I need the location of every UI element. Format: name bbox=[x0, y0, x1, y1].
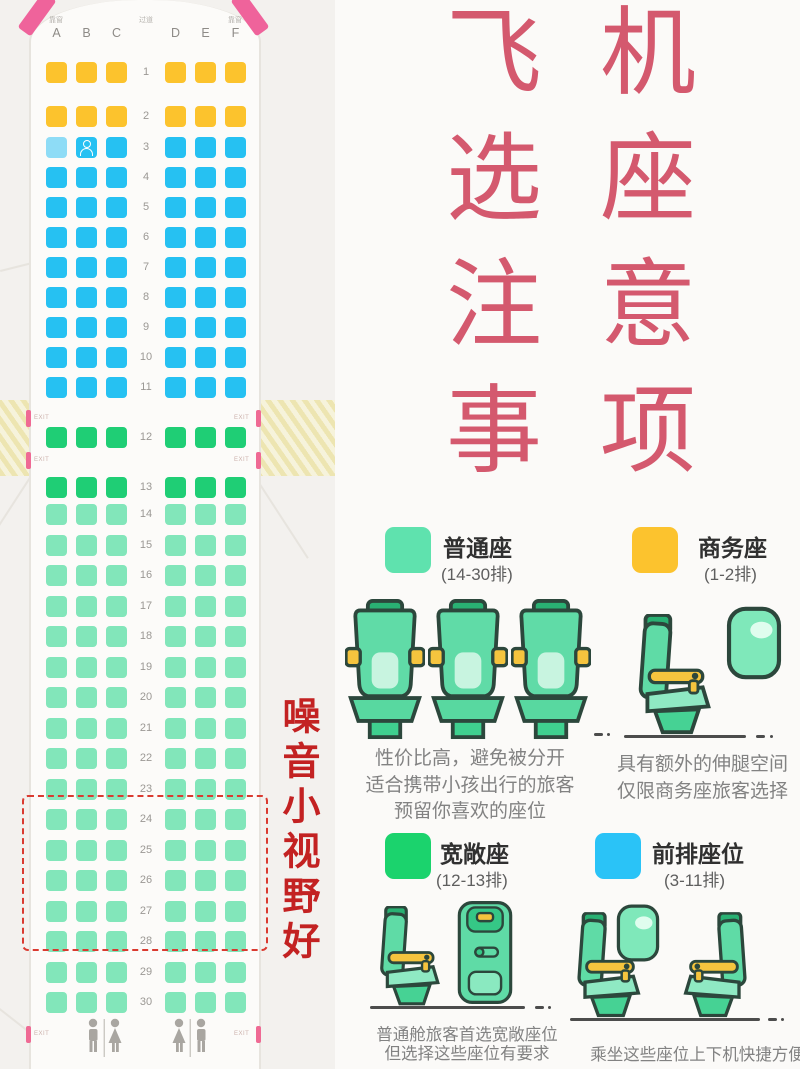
seat-5A[interactable] bbox=[46, 197, 67, 218]
exit-marker bbox=[26, 1026, 31, 1043]
row-number-14: 14 bbox=[133, 508, 159, 520]
seat-1D[interactable] bbox=[165, 62, 186, 83]
seat-15D[interactable] bbox=[165, 535, 186, 556]
ground-dot bbox=[770, 735, 773, 738]
seat-4F[interactable] bbox=[225, 167, 246, 188]
legend-swatch-business bbox=[632, 527, 678, 573]
seat-11E[interactable] bbox=[195, 377, 216, 398]
legend-desc-front: 乘坐这些座位上下机快捷方便 bbox=[590, 1046, 800, 1065]
legend-desc-normal: 性价比高，避免被分开 适合携带小孩出行的旅客 预留你喜欢的座位 bbox=[345, 746, 595, 826]
business-seat-illustration bbox=[630, 614, 722, 736]
exit-label: EXIT bbox=[234, 415, 249, 421]
front-row-seat-illustration bbox=[674, 912, 754, 1019]
ground-dot bbox=[607, 733, 610, 736]
seat-7A[interactable] bbox=[46, 257, 67, 278]
seat-2C[interactable] bbox=[106, 106, 127, 127]
seat-row-illustration bbox=[345, 599, 425, 740]
seat-7B[interactable] bbox=[76, 257, 97, 278]
row-number-21: 21 bbox=[133, 722, 159, 734]
seat-18F[interactable] bbox=[225, 626, 246, 647]
seat-1E[interactable] bbox=[195, 62, 216, 83]
row-number-4: 4 bbox=[133, 171, 159, 183]
legend-range-front: (3-11排) bbox=[664, 866, 725, 891]
row-number-23: 23 bbox=[133, 783, 159, 795]
ground-dash bbox=[768, 1018, 777, 1021]
row-number-17: 17 bbox=[133, 600, 159, 612]
ground-dash bbox=[756, 735, 765, 738]
seat-2F[interactable] bbox=[225, 106, 246, 127]
exit-marker bbox=[26, 410, 31, 427]
seat-12E[interactable] bbox=[195, 427, 216, 448]
seat-10D[interactable] bbox=[165, 347, 186, 368]
seat-6D[interactable] bbox=[165, 227, 186, 248]
seat-15A[interactable] bbox=[46, 535, 67, 556]
seat-3D[interactable] bbox=[165, 137, 186, 158]
title-char: 意 bbox=[582, 243, 714, 369]
seat-19D[interactable] bbox=[165, 657, 186, 678]
seat-8D[interactable] bbox=[165, 287, 186, 308]
seat-22B[interactable] bbox=[76, 748, 97, 769]
seat-11A[interactable] bbox=[46, 377, 67, 398]
row-number-2: 2 bbox=[133, 110, 159, 122]
legend-name-spacious: 宽敞座 bbox=[440, 835, 509, 869]
row-number-5: 5 bbox=[133, 201, 159, 213]
seat-17B[interactable] bbox=[76, 596, 97, 617]
seat-6C[interactable] bbox=[106, 227, 127, 248]
occupant-icon bbox=[76, 137, 97, 158]
row-number-19: 19 bbox=[133, 661, 159, 673]
seat-15E[interactable] bbox=[195, 535, 216, 556]
seat-1A[interactable] bbox=[46, 62, 67, 83]
seat-20D[interactable] bbox=[165, 687, 186, 708]
seat-30F[interactable] bbox=[225, 992, 246, 1013]
row-number-1: 1 bbox=[133, 66, 159, 78]
title-char: 注 bbox=[428, 243, 560, 369]
ground-dash bbox=[535, 1006, 544, 1009]
title-char: 座 bbox=[582, 117, 714, 243]
exit-marker bbox=[256, 452, 261, 469]
row-number-18: 18 bbox=[133, 630, 159, 642]
seat-17F[interactable] bbox=[225, 596, 246, 617]
title-char: 机 bbox=[582, 0, 714, 117]
title-char: 项 bbox=[582, 369, 714, 495]
seat-2D[interactable] bbox=[165, 106, 186, 127]
seat-21A[interactable] bbox=[46, 718, 67, 739]
row-number-16: 16 bbox=[133, 569, 159, 581]
row-number-15: 15 bbox=[133, 539, 159, 551]
seat-9E[interactable] bbox=[195, 317, 216, 338]
seat-1B[interactable] bbox=[76, 62, 97, 83]
seat-10C[interactable] bbox=[106, 347, 127, 368]
exit-marker bbox=[256, 1026, 261, 1043]
seat-7F[interactable] bbox=[225, 257, 246, 278]
seat-4D[interactable] bbox=[165, 167, 186, 188]
seat-6A[interactable] bbox=[46, 227, 67, 248]
seat-18C[interactable] bbox=[106, 626, 127, 647]
seat-10F[interactable] bbox=[225, 347, 246, 368]
title-char: 选 bbox=[428, 117, 560, 243]
seat-8B[interactable] bbox=[76, 287, 97, 308]
seat-12D[interactable] bbox=[165, 427, 186, 448]
seat-17C[interactable] bbox=[106, 596, 127, 617]
seat-9D[interactable] bbox=[165, 317, 186, 338]
seat-6B[interactable] bbox=[76, 227, 97, 248]
window-icon bbox=[726, 606, 782, 680]
seat-13F[interactable] bbox=[225, 477, 246, 498]
seat-14D[interactable] bbox=[165, 504, 186, 525]
row-number-3: 3 bbox=[133, 141, 159, 153]
seat-9C[interactable] bbox=[106, 317, 127, 338]
legend-range-business: (1-2排) bbox=[704, 560, 757, 585]
row-number-7: 7 bbox=[133, 261, 159, 273]
seat-19F[interactable] bbox=[225, 657, 246, 678]
quiet-rows-note: 噪音小视野好 bbox=[270, 696, 325, 966]
seat-15C[interactable] bbox=[106, 535, 127, 556]
seat-19A[interactable] bbox=[46, 657, 67, 678]
row-number-20: 20 bbox=[133, 691, 159, 703]
seat-17D[interactable] bbox=[165, 596, 186, 617]
window-icon bbox=[616, 904, 660, 962]
seat-30B[interactable] bbox=[76, 992, 97, 1013]
seat-12B[interactable] bbox=[76, 427, 97, 448]
row-number-22: 22 bbox=[133, 752, 159, 764]
seat-20F[interactable] bbox=[225, 687, 246, 708]
legend-swatch-normal bbox=[385, 527, 431, 573]
seat-8E[interactable] bbox=[195, 287, 216, 308]
exit-label: EXIT bbox=[34, 457, 49, 463]
legend-swatch-front bbox=[595, 833, 641, 879]
highlight-box-rows-24-28 bbox=[22, 795, 268, 951]
legend-name-business: 商务座 bbox=[698, 529, 767, 563]
seat-4C[interactable] bbox=[106, 167, 127, 188]
seat-16F[interactable] bbox=[225, 565, 246, 586]
seat-13C[interactable] bbox=[106, 477, 127, 498]
seat-30C[interactable] bbox=[106, 992, 127, 1013]
seat-4B[interactable] bbox=[76, 167, 97, 188]
row-number-9: 9 bbox=[133, 321, 159, 333]
seat-7C[interactable] bbox=[106, 257, 127, 278]
seat-3A[interactable] bbox=[46, 137, 67, 158]
seat-8A[interactable] bbox=[46, 287, 67, 308]
seat-15F[interactable] bbox=[225, 535, 246, 556]
legend-range-spacious: (12-13排) bbox=[436, 866, 508, 891]
seat-30E[interactable] bbox=[195, 992, 216, 1013]
spacious-seat-illustration bbox=[373, 906, 449, 1007]
row-number-29: 29 bbox=[133, 966, 159, 978]
ground-dot bbox=[781, 1018, 784, 1021]
seat-7D[interactable] bbox=[165, 257, 186, 278]
seat-20C[interactable] bbox=[106, 687, 127, 708]
seat-2A[interactable] bbox=[46, 106, 67, 127]
seat-11D[interactable] bbox=[165, 377, 186, 398]
ground-dot bbox=[548, 1006, 551, 1009]
seat-16B[interactable] bbox=[76, 565, 97, 586]
exit-label: EXIT bbox=[234, 457, 249, 463]
seat-29F[interactable] bbox=[225, 962, 246, 983]
seat-14E[interactable] bbox=[195, 504, 216, 525]
seat-19E[interactable] bbox=[195, 657, 216, 678]
row-number-10: 10 bbox=[133, 351, 159, 363]
row-number-6: 6 bbox=[133, 231, 159, 243]
seat-2E[interactable] bbox=[195, 106, 216, 127]
exit-label: EXIT bbox=[34, 415, 49, 421]
lavatory-icon bbox=[83, 1016, 127, 1060]
seat-3C[interactable] bbox=[106, 137, 127, 158]
seat-2B[interactable] bbox=[76, 106, 97, 127]
ground-line bbox=[570, 1018, 760, 1021]
seat-21C[interactable] bbox=[106, 718, 127, 739]
seat-16D[interactable] bbox=[165, 565, 186, 586]
seat-14B[interactable] bbox=[76, 504, 97, 525]
seat-9B[interactable] bbox=[76, 317, 97, 338]
seat-10B[interactable] bbox=[76, 347, 97, 368]
seat-22E[interactable] bbox=[195, 748, 216, 769]
seat-14F[interactable] bbox=[225, 504, 246, 525]
exit-marker bbox=[26, 452, 31, 469]
seat-18E[interactable] bbox=[195, 626, 216, 647]
legend-desc-spacious: 普通舱旅客首选宽敞座位 但选择这些座位有要求 bbox=[352, 1026, 582, 1063]
page-title: 飞 机 选 座 注 意 事 项 bbox=[428, 0, 714, 495]
seat-30A[interactable] bbox=[46, 992, 67, 1013]
seat-row-illustration bbox=[511, 599, 591, 740]
seat-29E[interactable] bbox=[195, 962, 216, 983]
legend-range-normal: (14-30排) bbox=[441, 560, 513, 585]
seat-5F[interactable] bbox=[225, 197, 246, 218]
seat-13E[interactable] bbox=[195, 477, 216, 498]
seat-1C[interactable] bbox=[106, 62, 127, 83]
row-number-8: 8 bbox=[133, 291, 159, 303]
seat-15B[interactable] bbox=[76, 535, 97, 556]
seat-11B[interactable] bbox=[76, 377, 97, 398]
seat-12F[interactable] bbox=[225, 427, 246, 448]
seat-14C[interactable] bbox=[106, 504, 127, 525]
seat-11F[interactable] bbox=[225, 377, 246, 398]
seat-29C[interactable] bbox=[106, 962, 127, 983]
seat-22F[interactable] bbox=[225, 748, 246, 769]
emergency-door-icon bbox=[456, 901, 514, 1004]
seat-13A[interactable] bbox=[46, 477, 67, 498]
seat-29D[interactable] bbox=[165, 962, 186, 983]
seat-7E[interactable] bbox=[195, 257, 216, 278]
seat-29A[interactable] bbox=[46, 962, 67, 983]
seat-30D[interactable] bbox=[165, 992, 186, 1013]
legend-name-front: 前排座位 bbox=[652, 835, 744, 869]
exit-label: EXIT bbox=[34, 1031, 49, 1037]
seat-20B[interactable] bbox=[76, 687, 97, 708]
seat-3E[interactable] bbox=[195, 137, 216, 158]
seat-5E[interactable] bbox=[195, 197, 216, 218]
seat-17E[interactable] bbox=[195, 596, 216, 617]
exit-marker bbox=[256, 410, 261, 427]
exit-label: EXIT bbox=[234, 1031, 249, 1037]
row-number-30: 30 bbox=[133, 996, 159, 1008]
seat-19C[interactable] bbox=[106, 657, 127, 678]
seat-17A[interactable] bbox=[46, 596, 67, 617]
seat-row-illustration bbox=[428, 599, 508, 740]
ground-dash bbox=[594, 733, 603, 736]
lavatory-icon bbox=[169, 1016, 213, 1060]
seat-3B[interactable] bbox=[76, 137, 97, 158]
seat-22C[interactable] bbox=[106, 748, 127, 769]
ground-line bbox=[370, 1006, 525, 1009]
seat-12C[interactable] bbox=[106, 427, 127, 448]
seat-5B[interactable] bbox=[76, 197, 97, 218]
seat-20E[interactable] bbox=[195, 687, 216, 708]
seat-4A[interactable] bbox=[46, 167, 67, 188]
seat-16C[interactable] bbox=[106, 565, 127, 586]
title-char: 飞 bbox=[428, 0, 560, 117]
title-char: 事 bbox=[428, 369, 560, 495]
seat-22D[interactable] bbox=[165, 748, 186, 769]
seat-8F[interactable] bbox=[225, 287, 246, 308]
seat-20A[interactable] bbox=[46, 687, 67, 708]
seat-14A[interactable] bbox=[46, 504, 67, 525]
legend-swatch-spacious bbox=[385, 833, 431, 879]
seat-21E[interactable] bbox=[195, 718, 216, 739]
seat-18A[interactable] bbox=[46, 626, 67, 647]
seat-5C[interactable] bbox=[106, 197, 127, 218]
row-number-13: 13 bbox=[133, 481, 159, 493]
seat-6E[interactable] bbox=[195, 227, 216, 248]
seat-16E[interactable] bbox=[195, 565, 216, 586]
seat-21D[interactable] bbox=[165, 718, 186, 739]
row-number-11: 11 bbox=[133, 381, 159, 393]
seat-9F[interactable] bbox=[225, 317, 246, 338]
seat-12A[interactable] bbox=[46, 427, 67, 448]
seat-4E[interactable] bbox=[195, 167, 216, 188]
seat-6F[interactable] bbox=[225, 227, 246, 248]
seat-18B[interactable] bbox=[76, 626, 97, 647]
legend-name-normal: 普通座 bbox=[443, 529, 512, 563]
seat-18D[interactable] bbox=[165, 626, 186, 647]
seat-19B[interactable] bbox=[76, 657, 97, 678]
seat-5D[interactable] bbox=[165, 197, 186, 218]
seat-13B[interactable] bbox=[76, 477, 97, 498]
row-number-12: 12 bbox=[133, 431, 159, 443]
seat-11C[interactable] bbox=[106, 377, 127, 398]
seat-21B[interactable] bbox=[76, 718, 97, 739]
seat-22A[interactable] bbox=[46, 748, 67, 769]
seat-10E[interactable] bbox=[195, 347, 216, 368]
seat-8C[interactable] bbox=[106, 287, 127, 308]
legend-desc-business: 具有额外的伸腿空间 仅限商务座旅客选择 bbox=[590, 752, 800, 805]
seat-10A[interactable] bbox=[46, 347, 67, 368]
seat-selection-infographic: 靠窗 过道 靠窗 A B C D E F 1234567891011121314… bbox=[0, 0, 800, 1069]
seat-9A[interactable] bbox=[46, 317, 67, 338]
seat-1F[interactable] bbox=[225, 62, 246, 83]
seat-21F[interactable] bbox=[225, 718, 246, 739]
seat-13D[interactable] bbox=[165, 477, 186, 498]
seat-16A[interactable] bbox=[46, 565, 67, 586]
seat-3F[interactable] bbox=[225, 137, 246, 158]
ground-line bbox=[624, 735, 746, 738]
seat-29B[interactable] bbox=[76, 962, 97, 983]
